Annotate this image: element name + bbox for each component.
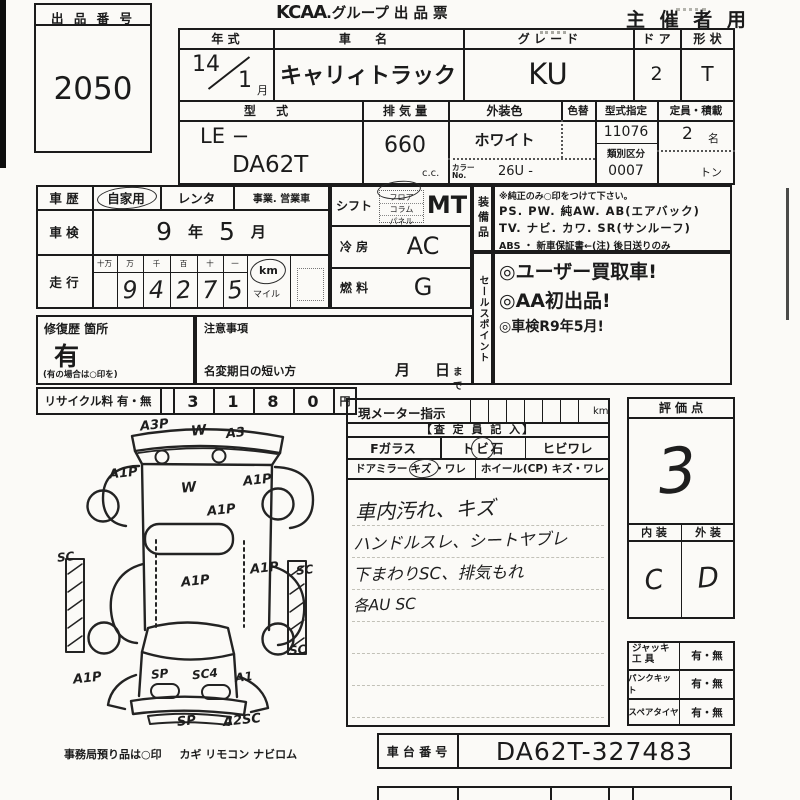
damage-code-label: SP [176, 713, 196, 730]
kcaa-logo: KCAA [276, 2, 326, 23]
ac-value: AC [376, 225, 470, 267]
repair-label: 修復歴 箇所 [44, 320, 108, 337]
mileage-unit-alt: マイル [253, 287, 280, 300]
door-mirror-text: ドアミラー [355, 461, 407, 476]
type-designation-header: 型式指定 [595, 100, 657, 120]
auction-sheet: 出 品 番 号 2050 KCAA.グループ 出 品 票 主 催 者 用 年 式… [0, 0, 800, 800]
partial-table [377, 786, 732, 800]
model-header: 型 式 [178, 100, 362, 120]
year-month-unit: 月 [257, 82, 268, 98]
car-damage-diagram: A3P W A3 A1P A1P W A1P SC A1P SC A1P SC … [35, 412, 335, 737]
year-month-value: 1 [238, 68, 252, 93]
shape-header: 形 状 [680, 28, 735, 48]
sales-point-line: ◎車検R9年5月! [499, 316, 726, 336]
shift-value: MT [424, 187, 470, 223]
tool-row-value: 有・無 [679, 669, 735, 698]
career-header: 車 歴 [36, 185, 92, 209]
scan-edge-right [786, 188, 789, 320]
tool-row-value: 有・無 [679, 698, 735, 726]
sales-point-line: ◎AA初出品! [499, 286, 726, 313]
damage-code-label: A1P [249, 560, 279, 578]
damage-code-label: SC [295, 562, 314, 578]
notice-day: 日 [435, 359, 450, 380]
mileage-digit: 9 [116, 271, 144, 308]
name-header: 車 名 [273, 28, 463, 48]
mileage-digit: 2 [169, 271, 199, 308]
inspection-header: 車 検 [36, 209, 92, 254]
sales-points-box: ◎ユーザー買取車! ◎AA初出品! ◎車検R9年5月! [493, 252, 732, 385]
damage-code-label: A1P [72, 670, 102, 688]
mileage-empty-box [297, 268, 324, 301]
mileage-col-header: 十万 [92, 257, 117, 270]
equipment-line: TV. ナビ. カワ. SR(サンルーフ) [499, 220, 726, 236]
inspection-month-unit: 月 [251, 221, 266, 242]
recycle-digit: 8 [253, 387, 293, 415]
rating-header: 評 価 点 [627, 397, 735, 417]
inspection-year-unit: 年 [188, 221, 203, 242]
damage-code-label: A3 [225, 425, 246, 442]
front-glass-label: Fガラス [346, 436, 440, 458]
damage-code-label: A1P [242, 472, 272, 490]
wheel-label: ホイール(CP) キズ・ワレ [475, 458, 610, 478]
notice-label: 注意事項 [204, 320, 248, 336]
interior-grade: C [622, 542, 685, 619]
displacement-value: 660 [362, 126, 448, 164]
class-division-value: 0007 [595, 161, 657, 181]
repair-note: (有の場合は○印を) [43, 368, 118, 380]
body-color-header: 外装色 [448, 100, 561, 120]
equipment-line: ABS ・ 新車保証書←(注) 後日送りのみ [499, 238, 726, 252]
inspection-year: 9 [156, 217, 172, 246]
grade-header: グ レ ー ド [463, 28, 633, 48]
class-division-label: 類別区分 [595, 146, 657, 159]
fuel-header: 燃 料 [332, 267, 376, 307]
damage-code-label: A3P [139, 417, 169, 435]
recycle-fee-label: リサイクル料 有・無 [36, 387, 160, 415]
displacement-header: 排 気 量 [362, 100, 448, 120]
year-value: 14 [192, 52, 220, 77]
assessor-note: 各AU SC [353, 592, 417, 616]
auction-number-value: 2050 [36, 71, 150, 107]
damage-code-label: W [180, 479, 197, 497]
ac-header: 冷 房 [332, 225, 376, 267]
equipment-note: ※純正のみ○印をつけて下さい。 [499, 189, 726, 202]
mileage-digit: 4 [142, 272, 170, 308]
grade-value: KU [463, 48, 633, 100]
body-color-value: ホワイト [448, 122, 561, 156]
shift-option-column: コラム [380, 203, 423, 216]
damage-code-label: A1P [180, 573, 210, 591]
deposit-note: 事務局預り品は○印 カギ リモコン ナビロム [64, 746, 297, 762]
model-value-1: LE − [200, 124, 249, 148]
form-title: KCAA.グループ 出 品 票 [276, 2, 448, 23]
mileage-header: 走 行 [36, 254, 92, 309]
notice-month: 月 [395, 359, 410, 380]
damage-code-label: W [190, 422, 207, 440]
displacement-unit: c.c. [422, 168, 439, 179]
fuel-value: G [376, 267, 470, 307]
color-change-header: 色替 [561, 100, 595, 120]
assessor-note: 下まわりSC、排気もれ [353, 559, 524, 586]
meter-label: 現メーター指示 [358, 403, 446, 422]
exterior-header: 外 装 [681, 523, 735, 540]
crack-label: ヒビワレ [525, 436, 610, 458]
notice-box: 注意事項 名変期日の短い方 月 日 まで [195, 315, 473, 385]
damage-code-label: SC [288, 642, 307, 658]
mileage-digit: 7 [196, 271, 224, 307]
damage-code-label: SC4 [191, 666, 218, 683]
recycle-digit: 1 [213, 387, 253, 415]
tool-row-value: 有・無 [679, 641, 735, 669]
auction-number-box: 出 品 番 号 2050 [34, 3, 152, 153]
deposit-note-items: カギ リモコン ナビロム [179, 748, 297, 761]
equipment-strip-label: 装備品 [475, 196, 491, 241]
capacity-load-unit: トン [700, 164, 722, 180]
deposit-note-prefix: 事務局預り品は○印 [64, 748, 162, 761]
repair-box: 修復歴 箇所 有 (有の場合は○印を) [36, 315, 195, 385]
sales-points-strip-label: セールスポイント [475, 275, 490, 363]
notice-suffix: まで [453, 364, 471, 392]
doors-value: 2 [633, 48, 680, 100]
career-option-business: 事業. 営業車 [233, 185, 330, 209]
inspection-value: 9 年 5 月 [92, 209, 330, 254]
tool-jack-line2: 工 具 [632, 655, 670, 666]
name-value: キャリィトラック [273, 48, 463, 100]
year-header: 年 式 [178, 28, 273, 48]
damage-code-label: SP [150, 666, 169, 682]
shape-value: T [680, 48, 735, 100]
equipment-line: PS. PW. 純AW. AB(エアバック) [499, 203, 726, 219]
shift-header: シフト [332, 185, 376, 225]
capacity-header: 定員・積載 [657, 100, 735, 120]
exterior-grade: D [679, 540, 738, 614]
type-designation-value: 11076 [595, 122, 657, 142]
mileage-col-header: 百 [170, 257, 197, 270]
capacity-persons-unit: 名 [708, 130, 719, 146]
sales-points-strip: セールスポイント [472, 252, 493, 385]
assessor-entry-label: 【査 定 員 記 入】 [346, 422, 610, 436]
chassis-number-value: DA62T-327483 [457, 733, 732, 769]
tool-row-label: パンクキット [628, 669, 679, 698]
capacity-persons: 2 [682, 124, 693, 144]
mileage-col-header: 十 [197, 257, 223, 270]
meter-unit: km [593, 406, 609, 417]
damage-code-label: A1 [234, 669, 253, 685]
damage-code-label: A1P [108, 465, 138, 483]
mileage-col-header: 千 [143, 257, 170, 270]
inspection-month: 5 [219, 217, 235, 246]
color-no-value: 26U - [498, 164, 533, 179]
doors-header: ド ア [633, 28, 680, 48]
damage-code-label: SC [56, 549, 75, 565]
notice-line: 名変期日の短い方 [204, 363, 296, 379]
assessor-note: 車内汚れ、キズ [355, 492, 496, 526]
recycle-digit: 3 [173, 387, 213, 415]
tool-row-label: ジャッキ 工 具 [632, 644, 670, 666]
rating-score: 3 [622, 415, 732, 525]
recycle-digit: 0 [293, 387, 333, 415]
scan-edge-left [0, 0, 6, 168]
model-value-2: DA62T [232, 152, 308, 178]
mileage-col-header: 万 [117, 257, 143, 270]
color-no-label: カラーNo. [452, 164, 478, 181]
equipment-box: ※純正のみ○印をつけて下さい。 PS. PW. 純AW. AB(エアバック) T… [493, 185, 732, 252]
sales-point-line: ◎ユーザー買取車! [499, 257, 726, 284]
damage-code-label: A1P [206, 502, 236, 520]
chassis-number-label: 車 台 番 号 [377, 733, 457, 769]
door-mirror-rest: ・ワレ [434, 461, 466, 476]
mileage-col-header: 一 [223, 257, 247, 270]
mileage-digit: 5 [221, 271, 249, 308]
tool-row-label: スペアタイヤ [628, 698, 679, 726]
equipment-strip: 装備品 [472, 185, 493, 252]
form-title-rest: .グループ 出 品 票 [326, 6, 447, 22]
career-option-rental: レンタ [160, 185, 233, 209]
interior-header: 内 装 [627, 523, 681, 540]
